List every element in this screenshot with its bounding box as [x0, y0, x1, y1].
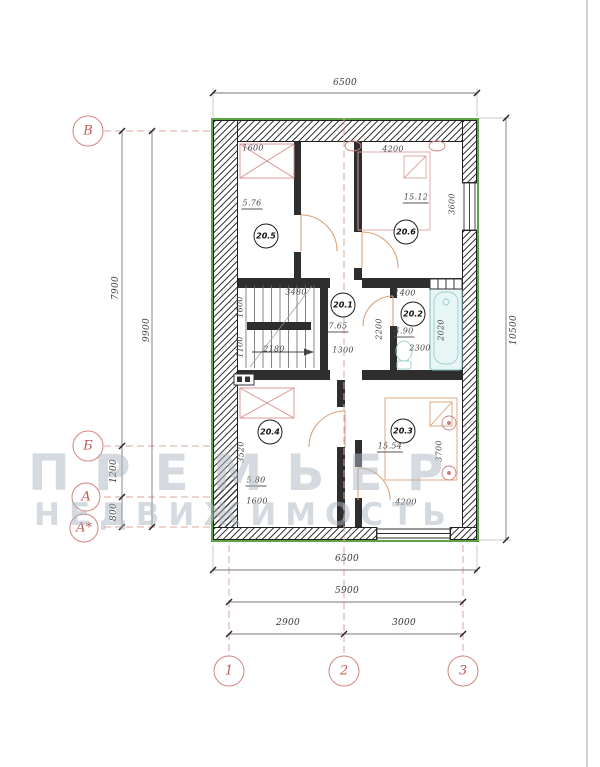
dim-stair-run: 2180: [263, 345, 285, 354]
dim-bottom-right: 3000: [392, 618, 416, 628]
axis-col-1: 1: [214, 656, 245, 687]
axis-row-a: А: [72, 483, 101, 512]
axis-row-a-star-label: А*: [76, 521, 92, 536]
wall-mid-lower-right: [362, 370, 462, 380]
dim-right-height: 10500: [509, 315, 519, 345]
dim-left-total: 9900: [142, 318, 152, 342]
dim-bottom-span: 5900: [335, 586, 359, 596]
axis-row-v: В: [73, 116, 104, 147]
axis-row-a-label: А: [81, 490, 91, 505]
axis-row-b: Б: [73, 431, 104, 462]
dim-room4-depth: 3520: [237, 441, 246, 463]
partition-room6-upper: [354, 142, 362, 232]
dim-room3-width: 4200: [395, 498, 417, 507]
dim-room5-width: 1600: [242, 144, 264, 153]
dim-bottom-width: 6500: [335, 554, 359, 564]
wall-mid-upper-right: [362, 278, 462, 288]
area-room2: 4.90: [393, 327, 414, 338]
dim-room6-width: 4200: [382, 145, 404, 154]
room-tag-20-2: 20.2: [401, 302, 426, 327]
axis-col-2-label: 2: [340, 664, 348, 679]
dim-bottom-left: 2900: [276, 618, 300, 628]
dim-bath-depth: 2200: [375, 318, 384, 340]
dim-hall-width: 1300: [332, 346, 354, 355]
wall-exterior-left: [213, 120, 238, 540]
dim-bath-width: 2300: [409, 344, 431, 353]
wall-mid-upper-left: [238, 278, 330, 288]
area-room4: 5.80: [245, 476, 266, 487]
room-tag-20-5: 20.5: [254, 224, 279, 249]
room-tag-20-4: 20.4: [258, 420, 283, 445]
area-room5: 5.76: [241, 199, 262, 210]
wall-exterior-right-upper: [462, 120, 477, 183]
partition-room4-upper: [337, 380, 345, 407]
dim-bath-niche: 1400: [394, 289, 416, 298]
dim-left-800: 800: [109, 503, 119, 521]
axis-row-v-label: В: [83, 124, 93, 139]
wall-exterior-bottom-right: [450, 527, 477, 540]
dim-stair-hall: 3480: [285, 288, 307, 297]
wall-exterior-bottom-left: [213, 527, 377, 540]
axis-col-3-label: 3: [459, 664, 467, 679]
axis-row-b-label: Б: [83, 439, 93, 454]
dim-room3-depth: 3700: [435, 440, 444, 462]
axis-col-3: 3: [448, 656, 479, 687]
page-edge-line: [586, 0, 588, 767]
area-room6: 15.12: [403, 193, 429, 204]
axis-col-1-label: 1: [225, 664, 233, 679]
wall-exterior-right-lower: [462, 230, 477, 540]
partition-room6-lower: [354, 268, 362, 280]
partition-room3-upper: [355, 440, 362, 467]
area-room1: 7.65: [327, 322, 348, 333]
partition-room5-upper: [294, 142, 301, 215]
dim-top-width: 6500: [333, 78, 357, 88]
wall-exterior-top: [213, 120, 477, 142]
partition-room5-lower: [294, 252, 301, 280]
dim-left-main: 7900: [111, 276, 121, 300]
dim-stair-flight2: 1100: [236, 336, 245, 358]
partition-room4-lower: [337, 447, 345, 527]
axis-col-2: 2: [329, 656, 360, 687]
floorplan-canvas: 6500 10500 7900 9900 1200 800 6500 5900 …: [0, 0, 600, 767]
room-tag-20-1: 20.1: [331, 293, 356, 318]
axis-row-a-star: А*: [70, 514, 99, 543]
partition-room3-lower: [355, 498, 362, 527]
dim-room6-depth: 3600: [448, 193, 457, 215]
dim-room4-width: 1600: [246, 497, 268, 506]
wall-mid-lower-left: [238, 370, 330, 380]
dim-bath-inner: 2020: [437, 319, 446, 341]
dim-left-1200: 1200: [109, 459, 119, 483]
room-tag-20-6: 20.6: [394, 220, 419, 245]
room-tag-20-3: 20.3: [391, 419, 416, 444]
dim-stair-flight1: 1600: [236, 296, 245, 318]
